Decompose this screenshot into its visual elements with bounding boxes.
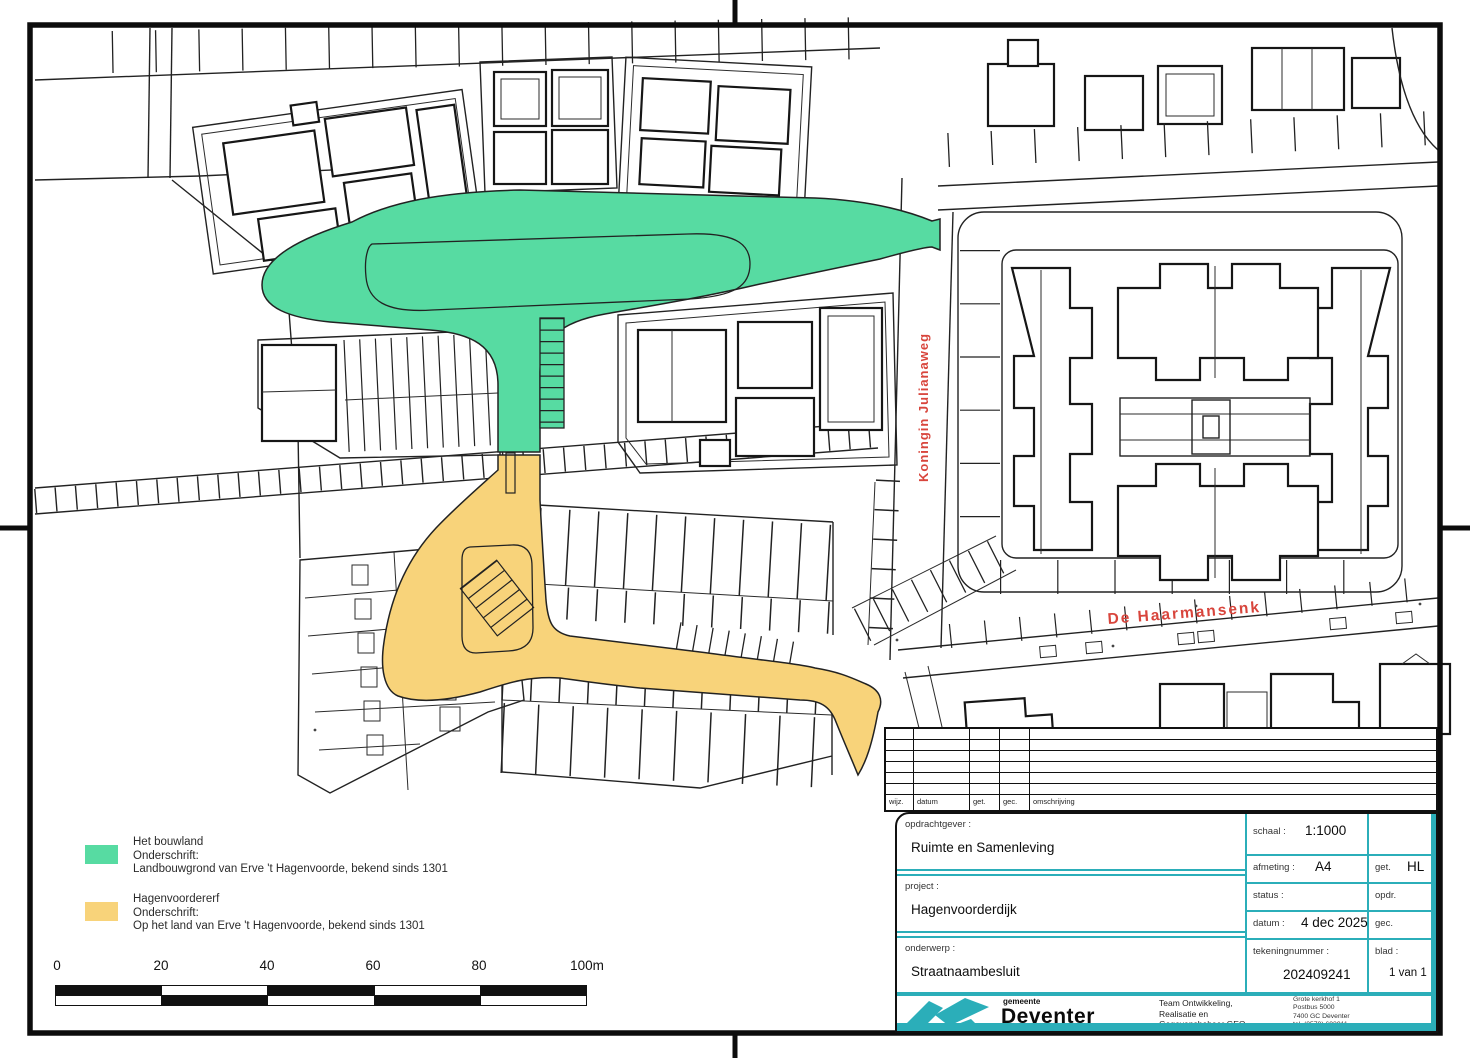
- legend-title: Het bouwland: [133, 836, 555, 850]
- status-label: status :: [1253, 890, 1284, 901]
- scale-bar-labels: 0 20 40 60 80 100m: [55, 958, 587, 978]
- teal-right-band: [1431, 814, 1436, 1033]
- schaal-label: schaal :: [1253, 826, 1286, 837]
- divider: [897, 931, 1245, 938]
- blad-value: 1 van 1: [1389, 967, 1427, 979]
- divider: [897, 869, 1245, 876]
- scale-bar: 0 20 40 60 80 100m: [55, 958, 587, 1006]
- scale-tick-label: 40: [259, 958, 274, 973]
- rev-col-gec: gec.: [1000, 795, 1030, 810]
- scale-tick-label: 20: [153, 958, 168, 973]
- map-sheet: Koningin Julianaweg De Haarmansenk Het b…: [0, 0, 1470, 1058]
- rev-col-get: get.: [970, 795, 1000, 810]
- datum-label: datum :: [1253, 918, 1285, 929]
- project-label: project :: [905, 881, 939, 892]
- scale-tick-label: 60: [365, 958, 380, 973]
- scale-tick-label: 0: [53, 958, 61, 973]
- legend-subtitle-label: Onderschrift:: [133, 850, 555, 864]
- afmeting-label: afmeting :: [1253, 862, 1295, 873]
- legend-description: Landbouwgrond van Erve 't Hagenvoorde, b…: [133, 863, 555, 877]
- opdrachtgever-label: opdrachtgever :: [905, 819, 971, 830]
- get-label: get.: [1375, 862, 1391, 873]
- rev-col-wijz: wijz.: [886, 795, 914, 810]
- legend-subtitle-label: Onderschrift:: [133, 907, 555, 921]
- divider: [1245, 854, 1438, 856]
- street-label-de-haarmansenk: De Haarmansenk: [1107, 599, 1262, 628]
- divider: [1367, 814, 1369, 992]
- legend-title: Hagenvoordererf: [133, 893, 555, 907]
- rev-col-omschrijving: omschrijving: [1030, 795, 1436, 810]
- gec-label: gec.: [1375, 918, 1393, 929]
- highlight-hagenvoordererf: [383, 453, 881, 775]
- onderwerp-value: Straatnaambesluit: [911, 964, 1020, 979]
- team-line: Team Ontwikkeling,: [1159, 998, 1245, 1009]
- scale-tick-label: 80: [471, 958, 486, 973]
- title-block: opdrachtgever : Ruimte en Samenleving pr…: [895, 812, 1438, 1033]
- legend-description: Op het land van Erve 't Hagenvoorde, bek…: [133, 920, 555, 934]
- scale-tick-label: 100m: [570, 958, 604, 973]
- legend: Het bouwland Onderschrift: Landbouwgrond…: [85, 836, 555, 950]
- scale-bar-graphic: [55, 985, 587, 1006]
- divider: [1245, 882, 1438, 884]
- divider: [1245, 910, 1438, 912]
- revision-table: wijz. datum get. gec. omschrijving: [884, 727, 1438, 812]
- address-line: Postbus 5000: [1293, 1004, 1386, 1012]
- legend-item-hagenvoordererf: Hagenvoordererf Onderschrift: Op het lan…: [85, 893, 555, 937]
- tekeningnummer-label: tekeningnummer :: [1253, 946, 1329, 957]
- legend-swatch-green: [85, 845, 118, 864]
- teal-bottom-band: [897, 1023, 1438, 1033]
- rev-col-datum: datum: [914, 795, 970, 810]
- address-line: Grote kerkhof 1: [1293, 996, 1386, 1004]
- divider: [1245, 938, 1438, 940]
- street-label-koningin-julianaweg: Koningin Julianaweg: [916, 333, 931, 482]
- opdrachtgever-value: Ruimte en Samenleving: [911, 840, 1054, 855]
- schaal-value: 1:1000: [1305, 823, 1346, 838]
- afmeting-value: A4: [1315, 859, 1332, 874]
- onderwerp-label: onderwerp :: [905, 943, 955, 954]
- blad-label: blad :: [1375, 946, 1398, 957]
- divider: [1245, 814, 1247, 992]
- address-line: 7400 GC Deventer: [1293, 1013, 1386, 1021]
- legend-swatch-yellow: [85, 902, 118, 921]
- tekeningnummer-value: 202409241: [1283, 967, 1351, 982]
- project-value: Hagenvoorderdijk: [911, 902, 1017, 917]
- street-labels: Koningin Julianaweg De Haarmansenk: [916, 333, 1262, 628]
- get-value: HL: [1407, 859, 1424, 874]
- datum-value: 4 dec 2025: [1301, 915, 1368, 930]
- team-line: Realisatie en: [1159, 1009, 1245, 1020]
- opdr-label: opdr.: [1375, 890, 1396, 901]
- legend-item-bouwland: Het bouwland Onderschrift: Landbouwgrond…: [85, 836, 555, 880]
